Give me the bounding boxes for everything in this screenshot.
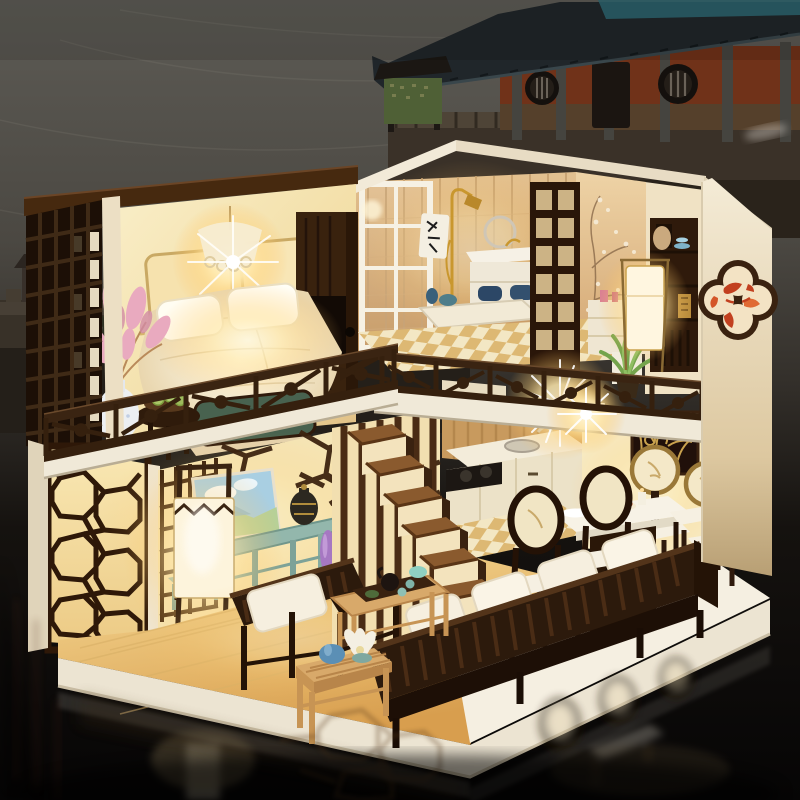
towel (418, 213, 449, 259)
ring-mirror (485, 217, 515, 247)
lattice-screen (530, 182, 580, 374)
signboard (374, 56, 452, 132)
round-window (525, 71, 559, 105)
right-exterior-wall (698, 178, 778, 576)
round-window (658, 64, 698, 104)
dollhouse-night-photo (0, 0, 800, 800)
temple-door (592, 62, 630, 128)
scene-canvas (0, 0, 800, 800)
